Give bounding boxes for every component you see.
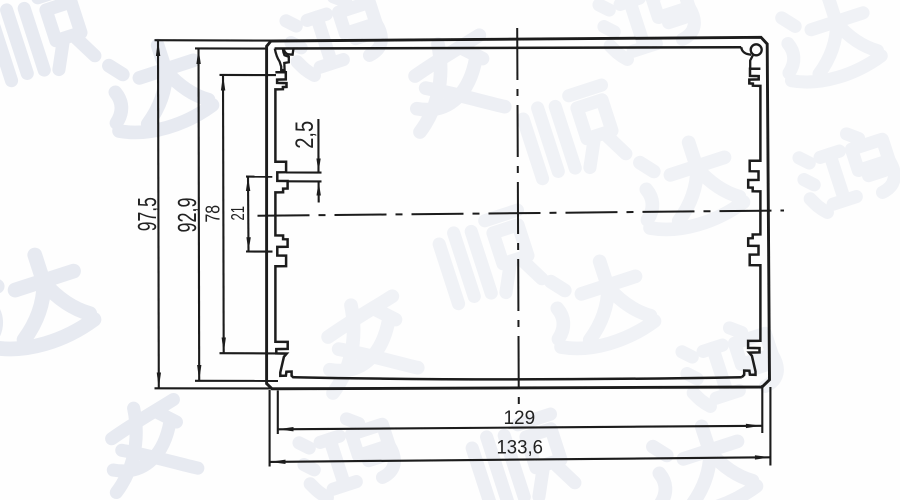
svg-text:78: 78: [202, 205, 224, 223]
svg-text:92,9: 92,9: [172, 198, 202, 233]
svg-text:97,5: 97,5: [132, 197, 162, 231]
svg-text:129: 129: [503, 408, 535, 429]
svg-text:2,5: 2,5: [291, 121, 319, 149]
svg-text:133,6: 133,6: [496, 438, 543, 459]
svg-text:21: 21: [228, 206, 248, 221]
